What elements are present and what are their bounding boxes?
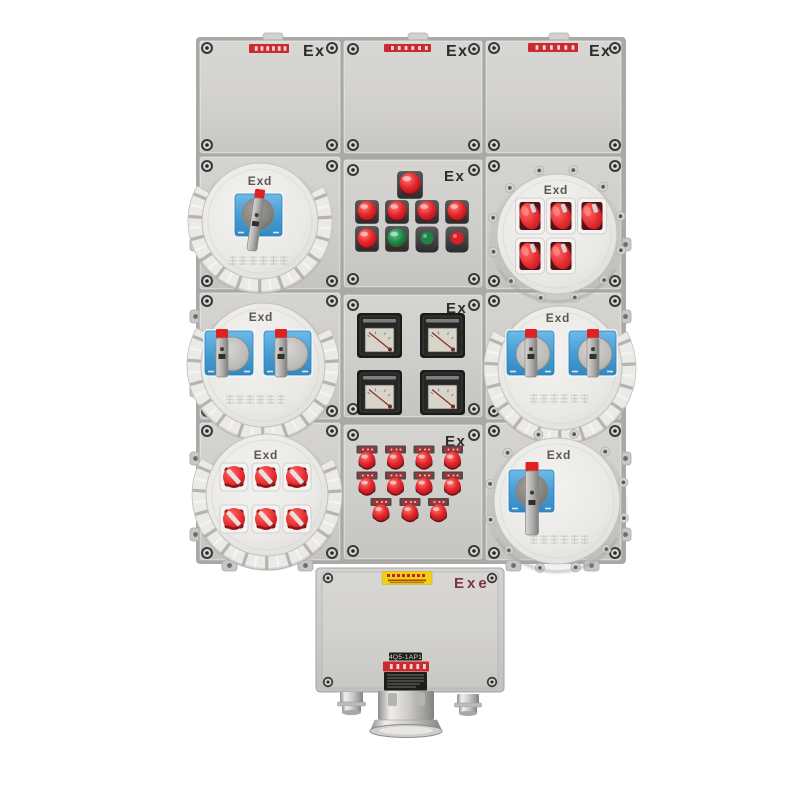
svg-text:Ex: Ex (444, 168, 465, 185)
svg-text:Exd: Exd (254, 448, 278, 462)
svg-text:Exe: Exe (454, 575, 490, 592)
svg-text:Exd: Exd (544, 183, 568, 197)
svg-text:Ex: Ex (446, 43, 469, 60)
svg-text:Exd: Exd (248, 174, 272, 188)
svg-text:Exd: Exd (547, 448, 571, 462)
svg-text:Exd: Exd (249, 310, 273, 324)
svg-text:Ex: Ex (303, 43, 326, 60)
svg-text:Exd: Exd (546, 311, 570, 325)
svg-text:4Q5-1AP1: 4Q5-1AP1 (389, 654, 422, 661)
svg-text:Ex: Ex (589, 43, 612, 60)
